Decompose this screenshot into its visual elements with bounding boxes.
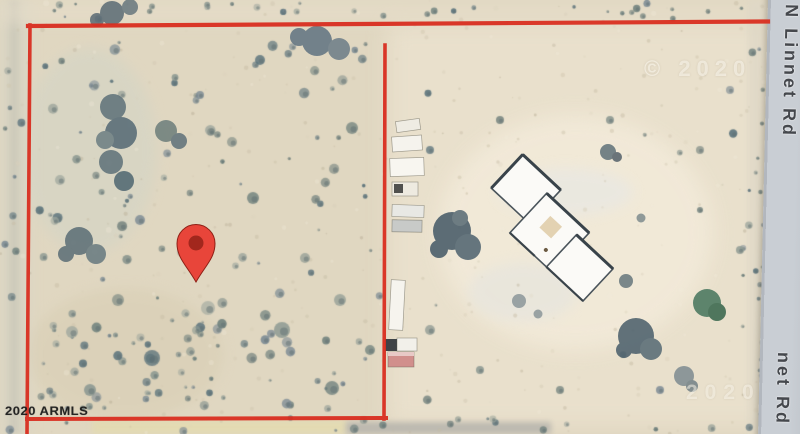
- vehicle-dark-box: [394, 184, 403, 193]
- boundary-middle: [384, 45, 385, 419]
- tree-west-of-house: [430, 210, 481, 260]
- tree-top-center: [290, 26, 350, 60]
- vehicle-rv-2: [390, 157, 425, 176]
- tree-cluster-left-boundary: [96, 94, 137, 191]
- bush-north-of-house: [600, 144, 622, 162]
- vehicle-car-white: [392, 204, 424, 217]
- boundary-bottom: [27, 418, 386, 419]
- tree-southeast: [616, 318, 662, 360]
- vehicle-car-gray: [392, 220, 422, 233]
- vehicle-dark-unit: [385, 339, 397, 351]
- vehicle-small-rv: [395, 118, 420, 132]
- vehicle-white-unit: [397, 338, 417, 351]
- tree-left-center: [155, 120, 187, 149]
- boundary-left: [27, 25, 30, 434]
- tree-topleft-corner: [90, 0, 138, 27]
- satellite-map-view[interactable]: N Linnet Rd net Rd: [0, 0, 800, 434]
- tree-green-east: [693, 289, 726, 321]
- boundary-top: [28, 22, 768, 27]
- location-pin-hole: [189, 236, 204, 251]
- bush-southeast-gray: [674, 366, 698, 392]
- vehicle-trailer-long: [389, 280, 406, 331]
- bush-above-southeast-tree: [619, 274, 633, 288]
- vehicles: [385, 118, 424, 367]
- map-overlay: [0, 0, 800, 434]
- vehicle-trailer-pink-top: [388, 352, 414, 356]
- house: [478, 155, 628, 301]
- tree-lower-left: [58, 227, 106, 264]
- location-pin[interactable]: [177, 225, 215, 283]
- bushes-south-of-house: [512, 294, 543, 319]
- bush-east-of-house: [637, 214, 646, 223]
- vehicle-rv-1: [392, 135, 423, 152]
